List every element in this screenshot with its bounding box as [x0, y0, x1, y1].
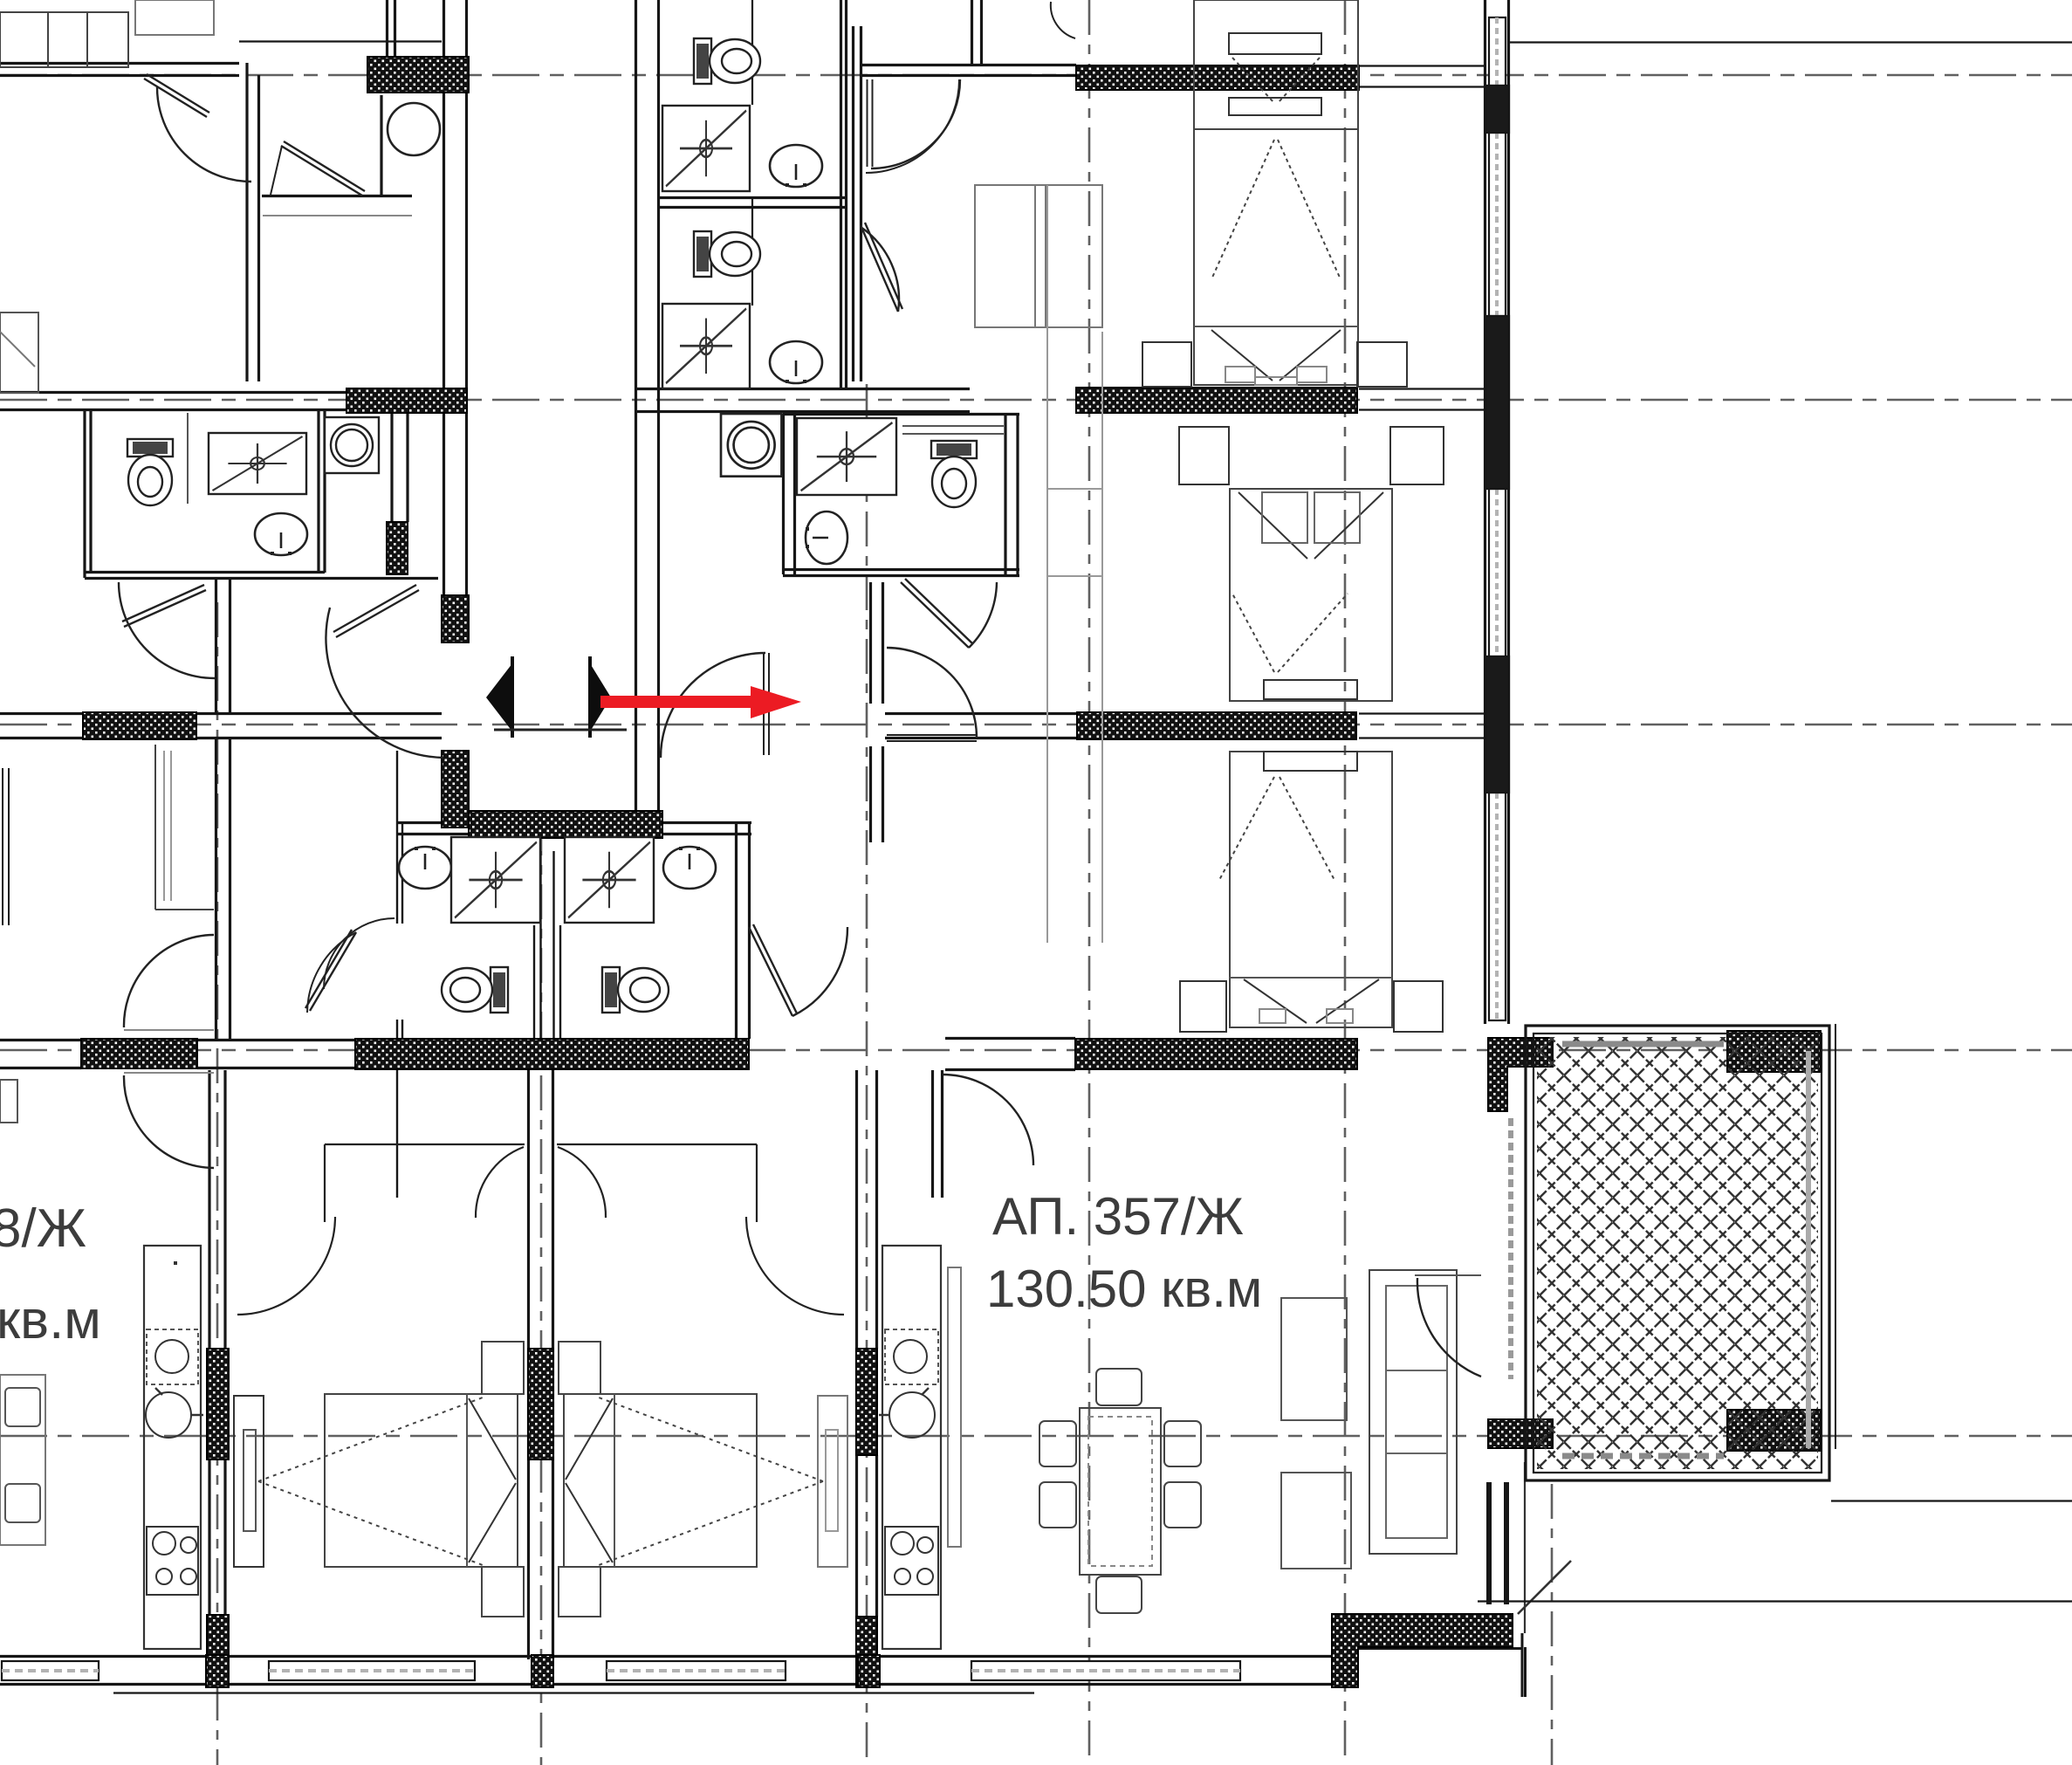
svg-text:АП. 357/Ж: АП. 357/Ж	[992, 1187, 1244, 1246]
svg-text:8/Ж: 8/Ж	[0, 1198, 86, 1259]
svg-text:кв.м: кв.м	[0, 1290, 101, 1350]
svg-text:130.50 кв.м: 130.50 кв.м	[986, 1260, 1262, 1318]
